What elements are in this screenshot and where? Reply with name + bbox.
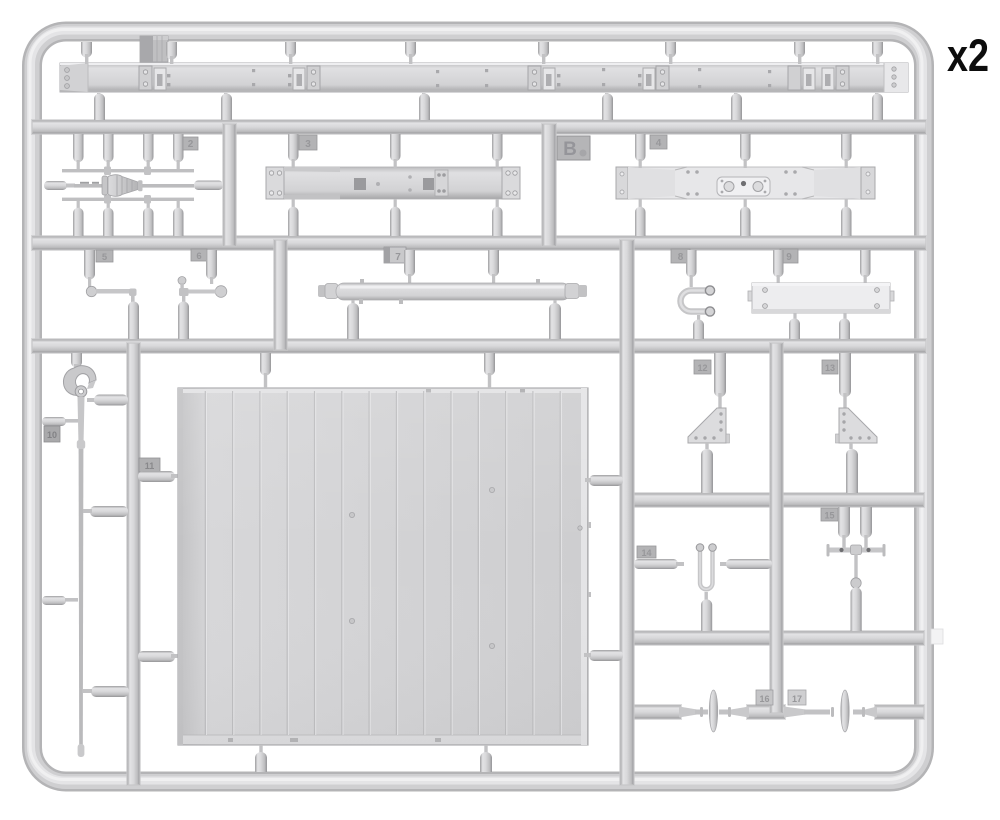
svg-text:6: 6 (196, 251, 201, 262)
svg-text:13: 13 (825, 363, 835, 373)
svg-text:10: 10 (47, 430, 57, 440)
svg-text:11: 11 (145, 461, 155, 471)
svg-text:17: 17 (792, 694, 802, 704)
svg-text:4: 4 (656, 138, 662, 149)
svg-text:7: 7 (395, 252, 401, 263)
svg-text:15: 15 (824, 511, 834, 521)
svg-text:5: 5 (102, 252, 108, 263)
svg-text:12: 12 (697, 363, 707, 373)
svg-text:8: 8 (678, 252, 684, 263)
svg-text:x2: x2 (947, 30, 989, 81)
svg-text:9: 9 (786, 252, 792, 263)
svg-text:3: 3 (305, 139, 311, 150)
svg-text:2: 2 (188, 139, 194, 150)
svg-text:B: B (563, 139, 577, 160)
svg-text:16: 16 (759, 694, 769, 704)
svg-text:14: 14 (641, 548, 651, 558)
